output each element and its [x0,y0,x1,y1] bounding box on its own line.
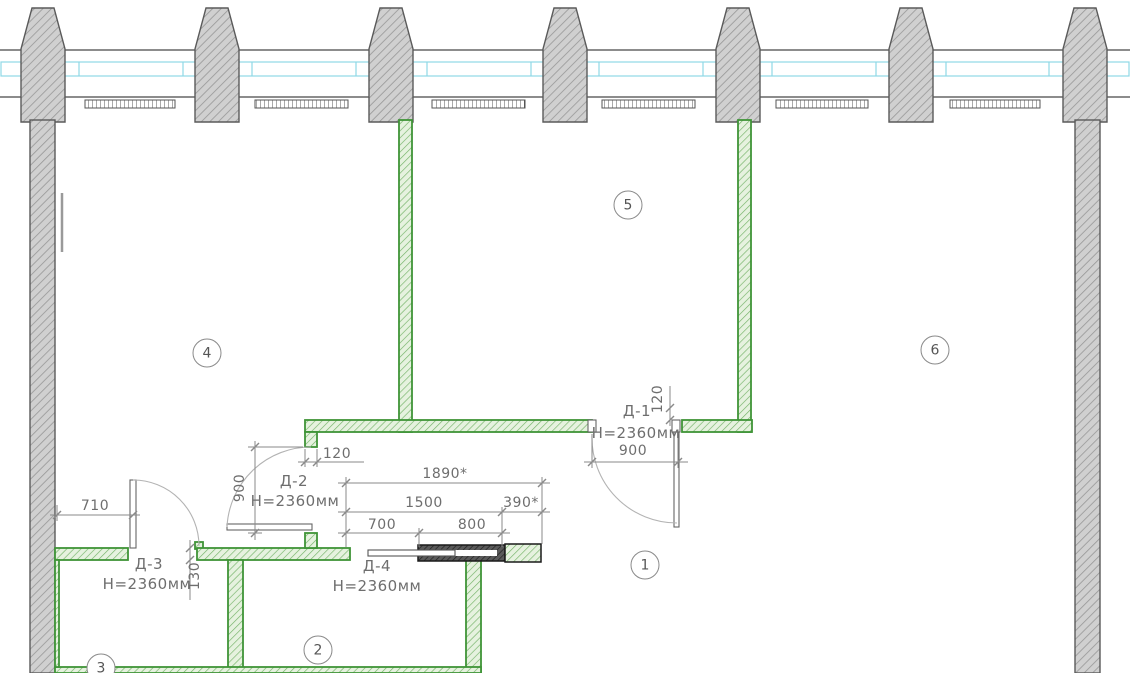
door-d3 [130,480,199,548]
room-number: 3 [97,660,106,673]
door-d4-height: H=2360мм [333,577,422,595]
door-d3-label: Д-3 [135,555,163,573]
door-leaf-d3 [130,480,136,548]
room-number: 2 [314,642,323,658]
dim-d4-cassette: 800 [458,517,486,533]
door-leaf-d2 [227,524,312,530]
door-d2-height: H=2360мм [251,492,340,510]
room-number: 1 [641,557,650,573]
floor-plan: 1 2 3 4 5 6 Д-1 H=2360мм 900 120 Д-2 H=2… [0,0,1130,673]
door-pocket [505,544,541,562]
door-d3-height: H=2360мм [103,575,192,593]
door-d2-label: Д-2 [280,472,308,490]
dim-d2-width: 900 [232,474,248,502]
door-d1-label: Д-1 [623,402,651,420]
door-d1-height: H=2360мм [592,424,681,442]
dim-d4-leaf: 700 [368,517,396,533]
dim-d1-width: 900 [619,443,647,459]
room-badge-6: 6 [921,336,950,365]
dim-d3-offset: 710 [81,498,109,514]
plan-linework [0,0,1130,673]
existing-wall-left [30,120,55,673]
room-number: 6 [931,342,940,358]
door-swing-d3 [133,480,199,546]
dim-d4-total: 1890* [422,466,467,482]
dim-d4-pocket: 390* [503,495,539,511]
room-badge-2: 2 [304,636,333,665]
room-number: 4 [203,345,212,361]
existing-wall-right [1075,120,1100,673]
door-d4-label: Д-4 [363,557,391,575]
sliding-door-d4 [368,544,541,562]
room-badge-4: 4 [193,339,222,368]
dim-d1-jamb: 120 [650,385,666,413]
room-badge-1: 1 [631,551,660,580]
room-badge-5: 5 [614,191,643,220]
columns [21,8,1107,122]
door-leaf-d4 [368,550,455,556]
dim-d2-jamb: 120 [323,446,351,462]
room-number: 5 [624,197,633,213]
dim-d3-thickness: 130 [187,562,203,590]
dim-d4-chain: 1500 [405,495,443,511]
